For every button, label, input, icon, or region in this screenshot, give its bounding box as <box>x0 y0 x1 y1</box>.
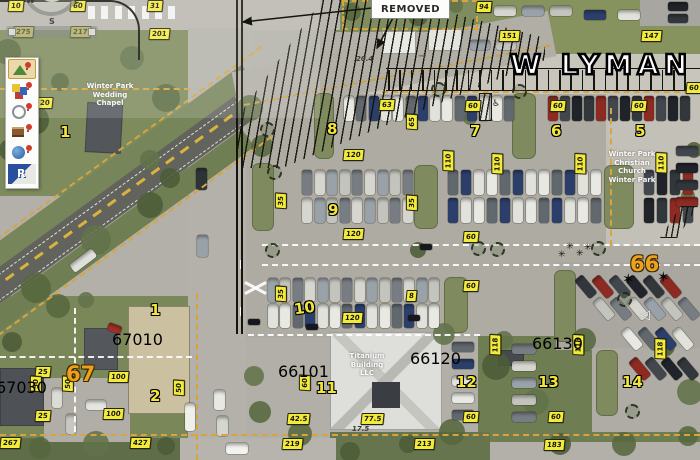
dimension-label: 427 <box>129 437 151 449</box>
car-icon <box>306 324 318 330</box>
dimension-label: 60 <box>630 100 647 112</box>
tree-canopy <box>244 366 264 386</box>
parcel-line <box>0 434 700 436</box>
car <box>526 170 536 195</box>
car <box>429 278 439 302</box>
lot-number-label: 12 <box>456 375 477 390</box>
dimension-label: 60 <box>549 100 566 112</box>
map-canvas[interactable]: REMOVED W LYMAN W E S 106027521731201941… <box>0 0 700 460</box>
tree-canopy <box>677 379 700 405</box>
car <box>226 443 248 454</box>
network-pin-tool-icon[interactable] <box>8 101 36 121</box>
car <box>380 304 390 328</box>
car <box>513 170 523 195</box>
measurement-note: 20.4 <box>356 55 373 63</box>
car <box>500 198 510 223</box>
tree-canopy <box>81 225 111 255</box>
stall-line <box>491 70 493 90</box>
car-icon <box>248 319 260 325</box>
car <box>302 170 312 195</box>
driveway <box>180 438 336 460</box>
car <box>578 198 588 223</box>
handicap-icon: ♿ <box>492 100 500 109</box>
car <box>340 170 350 195</box>
dimension-label: 63 <box>378 99 395 111</box>
lot-number-label: 13 <box>538 375 559 390</box>
tree-canopy <box>157 437 175 455</box>
stall-line <box>388 70 390 90</box>
car <box>596 96 606 121</box>
car <box>378 198 388 223</box>
car <box>539 170 549 195</box>
centerline <box>0 356 192 358</box>
asterisk-icon: ✳ <box>576 250 584 259</box>
car <box>403 170 413 195</box>
dimension-label: 60 <box>547 411 564 423</box>
lot-number-label: 14 <box>622 375 643 390</box>
car-icon <box>408 315 420 321</box>
centerline <box>248 334 480 336</box>
car <box>668 2 688 11</box>
car <box>584 96 594 121</box>
car <box>474 170 484 195</box>
car <box>474 198 484 223</box>
dimension-label: 100 <box>107 371 129 383</box>
slider-end-box[interactable] <box>8 28 16 36</box>
tree-icon <box>512 84 527 99</box>
car <box>355 278 365 302</box>
car <box>197 235 208 257</box>
lot-number-label: 1 <box>60 125 70 140</box>
parcel-id-label: 66120 <box>410 349 461 368</box>
tree-icon <box>625 404 640 419</box>
dimension-label: 151 <box>498 30 520 42</box>
dimension-label: 267 <box>0 437 21 449</box>
crosswalk-bar <box>168 6 175 19</box>
tree-canopy <box>29 437 51 459</box>
car <box>318 304 328 328</box>
dimension-label: 50 <box>173 380 185 397</box>
compass-east: E <box>74 0 79 5</box>
zone-number-label: 67 <box>66 364 95 385</box>
parcel-id-label: 67010 <box>112 330 163 349</box>
building <box>330 332 442 430</box>
dimension-label: 77.5 <box>360 413 385 425</box>
tree-icon <box>591 241 606 256</box>
building <box>85 102 124 154</box>
east-arrow-icon: → <box>418 52 426 62</box>
car <box>330 278 340 302</box>
place-label: Winter ParkWeddingChapel <box>80 82 140 108</box>
asterisk-icon: ✳ <box>566 243 574 252</box>
lot-number-label: 6 <box>551 124 561 139</box>
lot-number-label: 10 <box>293 300 316 318</box>
stall-line <box>456 70 458 90</box>
car <box>644 198 654 223</box>
dimension-label: 60 <box>462 411 479 423</box>
landscape-island <box>554 270 576 342</box>
car-icon <box>420 244 432 250</box>
tree-icon <box>260 122 275 137</box>
tree-canopy <box>137 192 163 218</box>
catalog-pin-tool-icon[interactable] <box>8 122 36 142</box>
dimension-label: 147 <box>640 30 662 42</box>
dimension-label: 110 <box>491 153 503 174</box>
stall-line <box>479 70 481 90</box>
car <box>618 10 640 20</box>
car <box>455 96 465 121</box>
car <box>452 393 474 403</box>
lot-number-label: 1 <box>150 303 160 318</box>
car <box>584 10 606 20</box>
dimension-label: 110 <box>442 150 454 171</box>
lot-number-label: 11 <box>316 381 337 396</box>
tree-canopy <box>439 419 465 445</box>
car <box>550 6 572 16</box>
tree-canopy <box>482 352 510 380</box>
tree-icon <box>267 165 282 180</box>
dimension-label: 35 <box>406 195 418 212</box>
tree-canopy <box>249 401 271 423</box>
dimension-label: 118 <box>489 334 501 355</box>
stall-line <box>411 70 413 90</box>
car <box>526 198 536 223</box>
parcel-line <box>196 294 198 460</box>
car <box>302 198 312 223</box>
tree-canopy <box>678 426 698 446</box>
dimension-label: 60 <box>462 280 479 292</box>
lot-number-label: 5 <box>635 124 645 139</box>
car <box>217 416 228 436</box>
dimension-label: 94 <box>475 1 492 13</box>
car <box>461 198 471 223</box>
car <box>352 170 362 195</box>
car <box>327 170 337 195</box>
car <box>268 304 278 328</box>
car <box>417 278 427 302</box>
tree-canopy <box>340 442 360 460</box>
tree-icon <box>490 242 505 257</box>
dimension-label: 42.5 <box>286 413 311 425</box>
dimension-label: 110 <box>655 152 667 173</box>
car <box>591 198 601 223</box>
dimension-label: 100 <box>102 408 124 420</box>
dimension-label: 120 <box>341 312 363 324</box>
stall-line <box>399 70 401 90</box>
car <box>342 278 352 302</box>
dimension-label: 60 <box>464 100 481 112</box>
car <box>461 170 471 195</box>
car <box>680 96 690 121</box>
compass-west: W <box>26 0 35 5</box>
dimension-label: 35 <box>275 193 287 210</box>
stall-line <box>468 70 470 90</box>
car <box>365 170 375 195</box>
tree-icon <box>617 292 632 307</box>
car <box>315 170 325 195</box>
parcel-id-label: 66130 <box>532 334 583 353</box>
car <box>512 361 536 371</box>
car <box>340 198 350 223</box>
car <box>352 198 362 223</box>
car <box>668 14 688 23</box>
place-label: TitaniumBuildingLLC <box>332 352 402 378</box>
lot-number-label: 9 <box>328 203 338 218</box>
lot-number-label: 2 <box>150 389 160 404</box>
tree-canopy <box>140 150 160 170</box>
crossing-stripe <box>479 93 492 121</box>
dimension-label: 213 <box>413 438 435 450</box>
car <box>676 180 698 190</box>
car <box>512 412 536 422</box>
tree-icon <box>265 243 280 258</box>
car <box>522 6 544 16</box>
zone-number-label: 66 <box>630 254 659 275</box>
car <box>365 198 375 223</box>
lot-number-label: 7 <box>470 124 480 139</box>
car <box>378 170 388 195</box>
car <box>392 304 402 328</box>
car <box>448 170 458 195</box>
map-pin-tool-icon[interactable] <box>8 59 36 79</box>
pan-slider[interactable] <box>6 26 98 38</box>
dimension-label: 25 <box>34 410 51 422</box>
tools-palette <box>5 57 39 189</box>
map-navigator[interactable]: W E S <box>2 0 102 42</box>
car <box>390 198 400 223</box>
car <box>513 198 523 223</box>
tree-canopy <box>78 292 94 308</box>
car <box>280 304 290 328</box>
dimension-label: 8 <box>405 290 417 302</box>
dimension-label: 118 <box>654 338 666 359</box>
car <box>676 163 698 173</box>
arcreader-logo-icon[interactable] <box>8 164 36 184</box>
dimension-label: 120 <box>342 228 364 240</box>
dimension-label: 201 <box>148 28 170 40</box>
dimension-label: 110 <box>574 153 586 174</box>
car <box>657 198 667 223</box>
car <box>620 96 630 121</box>
left-arrow-icon: ◁ <box>640 309 650 322</box>
car <box>214 390 225 410</box>
globe-pin-tool-icon[interactable] <box>8 143 36 163</box>
car <box>565 198 575 223</box>
measurement-note: 17.5 <box>352 425 369 433</box>
parcel-id-label: 67030 <box>0 378 47 397</box>
car <box>668 96 678 121</box>
dimension-label: 35 <box>275 286 287 303</box>
tree-canopy <box>2 332 22 352</box>
slider-end-box[interactable] <box>88 28 96 36</box>
car <box>552 170 562 195</box>
car <box>367 278 377 302</box>
car <box>676 146 698 156</box>
layers-tool-icon[interactable] <box>8 80 36 100</box>
lot-number-label: 8 <box>327 122 337 137</box>
asterisk-icon: ✳ <box>558 251 566 260</box>
tree-canopy <box>160 168 180 188</box>
dimension-label: 183 <box>543 439 565 451</box>
car <box>565 170 575 195</box>
car <box>656 96 666 121</box>
car <box>676 197 698 207</box>
dimension-label: 219 <box>281 438 303 450</box>
dimension-label: 120 <box>342 149 364 161</box>
stall-line <box>502 70 504 90</box>
dimension-label: 31 <box>146 0 163 12</box>
landscape-island <box>596 350 618 416</box>
removed-annotation: REMOVED <box>371 0 450 19</box>
car <box>367 304 377 328</box>
car <box>494 6 516 16</box>
building-court <box>372 382 400 408</box>
dimension-label: 60 <box>462 231 479 243</box>
car <box>539 198 549 223</box>
stall-line <box>422 70 424 90</box>
dimension-label: 60 <box>685 82 700 94</box>
car <box>572 96 582 121</box>
parcel-id-label: 66101 <box>278 362 329 381</box>
compass-south: S <box>49 17 55 26</box>
street-name-label: W LYMAN <box>510 48 692 81</box>
car <box>380 278 390 302</box>
car <box>512 378 536 388</box>
landscape-island <box>512 93 536 159</box>
car <box>330 304 340 328</box>
car <box>185 403 195 431</box>
dimension-label: 65 <box>406 114 418 131</box>
tree-icon <box>471 241 486 256</box>
car <box>512 395 536 405</box>
car <box>448 198 458 223</box>
tree-icon <box>431 82 446 97</box>
car <box>52 388 62 408</box>
car <box>552 198 562 223</box>
car <box>487 198 497 223</box>
car <box>392 278 402 302</box>
car <box>390 170 400 195</box>
car <box>315 198 325 223</box>
car <box>504 96 514 121</box>
asterisk-icon: ✳ <box>584 244 592 253</box>
car <box>429 304 439 328</box>
car <box>318 278 328 302</box>
